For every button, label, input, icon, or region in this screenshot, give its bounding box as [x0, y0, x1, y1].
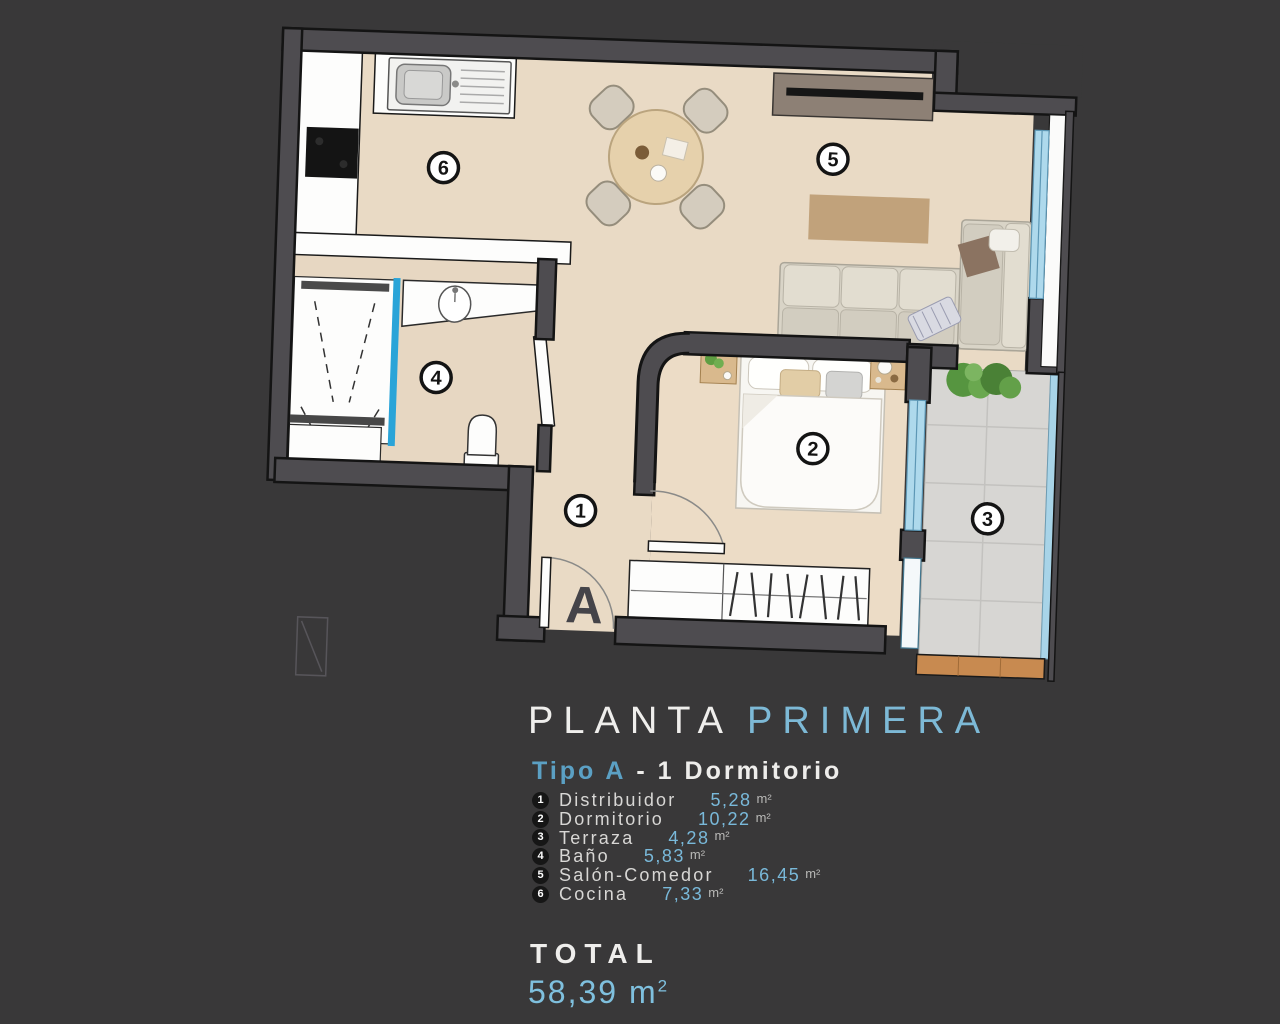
legend-room-name: Cocina: [559, 884, 628, 905]
room-badge-5: 5: [817, 144, 848, 175]
legend-badge: 6: [532, 886, 549, 903]
title-part1: PLANTA: [528, 700, 733, 742]
kitchen-sink: [387, 58, 511, 114]
subtitle-rest: - 1 Dormitorio: [636, 757, 842, 785]
room-badge-3: 3: [972, 503, 1003, 534]
plan-subtitle: Tipo A- 1 Dormitorio: [532, 757, 842, 786]
shower: [289, 274, 401, 446]
svg-text:5: 5: [827, 149, 839, 171]
legend-badge: 4: [532, 848, 549, 865]
bed: [736, 350, 886, 513]
legend-room-unit: m²: [690, 847, 705, 862]
total-unit: m: [629, 974, 658, 1010]
toilet: [464, 415, 500, 470]
room-badge-2: 2: [797, 433, 828, 464]
floor-plan-page: 6 5 2 4 1 3 A PLANTAPRIMERA: [0, 0, 1280, 1024]
svg-text:2: 2: [807, 438, 819, 460]
legend-row: 4 Baño 5,83 m²: [532, 847, 820, 866]
wardrobe: [628, 560, 870, 625]
legend-room-area: 16,45: [748, 865, 801, 886]
room-legend: 1 Distribuidor 5,28 m² 2 Dormitorio 10,2…: [532, 791, 820, 904]
entrance-label: A: [564, 576, 604, 635]
legend-room-unit: m²: [714, 828, 729, 843]
legend-row: 3 Terraza 4,28 m²: [532, 829, 820, 848]
total-label: TOTAL: [530, 938, 661, 970]
rug: [808, 194, 929, 243]
legend-room-unit: m²: [756, 810, 771, 825]
legend-badge: 3: [532, 829, 549, 846]
wood-deck: [916, 654, 1045, 678]
lower-window: [901, 558, 921, 649]
ghost-outline: [296, 617, 328, 676]
page-title: PLANTAPRIMERA: [528, 700, 990, 743]
total-amount: 58,39: [528, 974, 618, 1010]
legend-row: 1 Distribuidor 5,28 m²: [532, 791, 820, 810]
svg-text:1: 1: [575, 500, 587, 522]
svg-text:3: 3: [982, 509, 994, 531]
room-badge-1: 1: [565, 495, 596, 526]
bath-cabinet: [288, 424, 381, 461]
total-unit-sup: 2: [658, 976, 669, 995]
legend-room-area: 7,33: [662, 884, 703, 905]
legend-badge: 5: [532, 867, 549, 884]
legend-room-unit: m²: [805, 866, 820, 881]
pillow-white: [989, 229, 1020, 252]
legend-row: 5 Salón-Comedor 16,45 m²: [532, 866, 820, 885]
legend-badge: 1: [532, 792, 549, 809]
legend-row: 2 Dormitorio 10,22 m²: [532, 810, 820, 829]
total-value: 58,39 m2: [528, 974, 669, 1011]
legend-row: 6 Cocina 7,33 m²: [532, 885, 820, 904]
cooktop-icon: [305, 127, 359, 179]
room-badge-4: 4: [421, 362, 452, 393]
room-badge-6: 6: [428, 152, 459, 183]
legend-room-unit: m²: [708, 885, 723, 900]
legend-badge: 2: [532, 811, 549, 828]
subtitle-type: Tipo A: [532, 757, 626, 785]
title-part2: PRIMERA: [747, 700, 990, 742]
svg-text:4: 4: [430, 367, 443, 389]
legend-room-unit: m²: [756, 791, 771, 806]
svg-text:6: 6: [437, 157, 449, 179]
